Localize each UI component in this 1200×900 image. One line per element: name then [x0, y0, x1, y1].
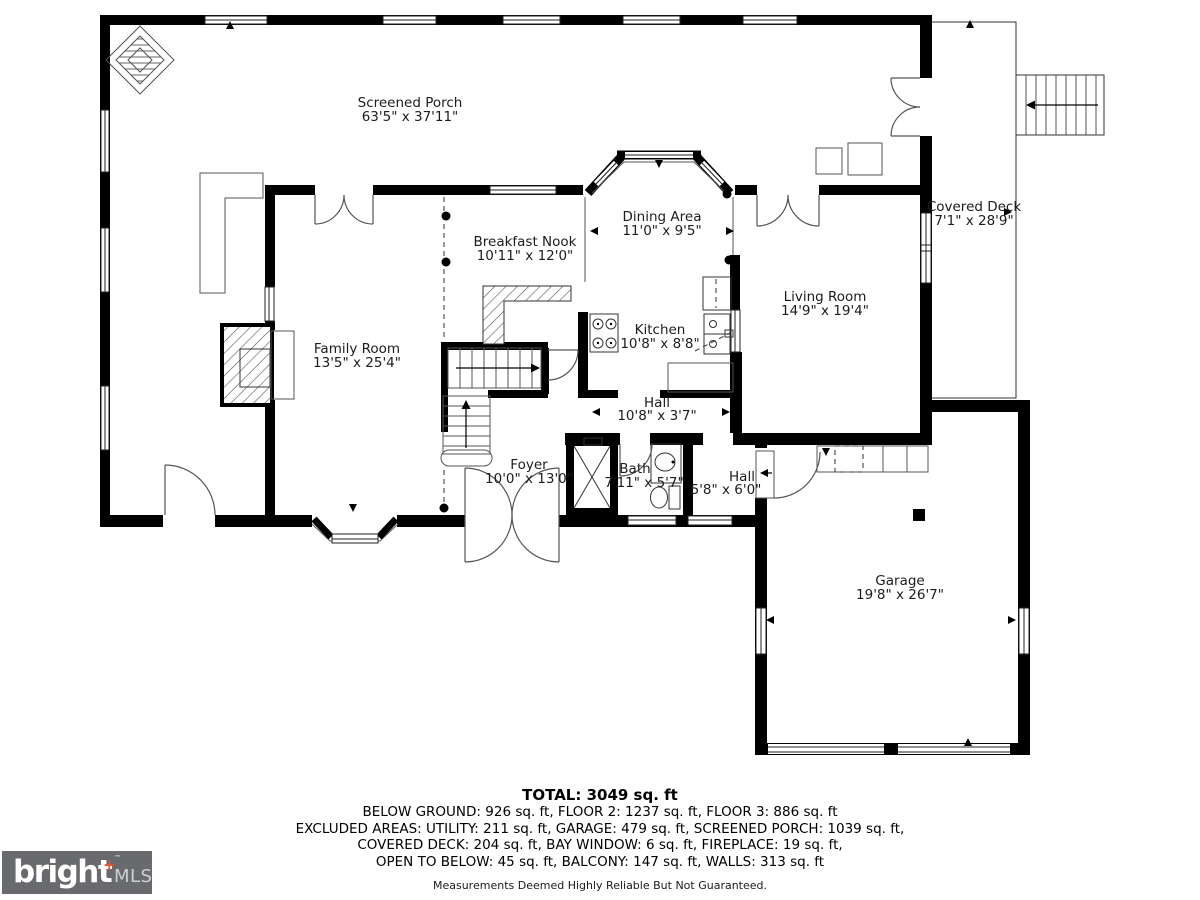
room-dims-family-room: 13'5" x 25'4"	[313, 355, 401, 371]
total-area-text: TOTAL: 3049 sq. ft	[0, 786, 1200, 804]
summary-line-2: EXCLUDED AREAS: UTILITY: 211 sq. ft, GAR…	[0, 821, 1200, 838]
stairs-up-arrow-icon	[531, 364, 540, 373]
plan-annotations	[226, 20, 1016, 746]
disclaimer-text: Measurements Deemed Highly Reliable But …	[0, 879, 1200, 892]
porch-table-2	[848, 143, 882, 175]
summary-line-3: COVERED DECK: 204 sq. ft, BAY WINDOW: 6 …	[0, 837, 1200, 854]
stairs-arrow-icon	[462, 400, 471, 409]
breakfast-counter	[483, 286, 571, 344]
summary-line-1: BELOW GROUND: 926 sq. ft, FLOOR 2: 1237 …	[0, 804, 1200, 821]
porch-table-1	[816, 148, 842, 174]
room-dims-screened-porch: 63'5" x 37'11"	[362, 109, 459, 125]
deck-stairs-arrow-icon	[1026, 101, 1035, 110]
room-dims-bath: 7'11" x 5'7"	[604, 475, 683, 491]
stove-icon	[590, 314, 618, 352]
floor-plan-page: Screened Porch 63'5" x 37'11" Covered De…	[0, 0, 1200, 900]
room-dims-dining-area: 11'0" x 9'5"	[622, 223, 701, 239]
room-dims-foyer: 10'0" x 13'0"	[485, 471, 573, 487]
room-dims-kitchen: 10'8" x 8'8"	[620, 336, 699, 352]
area-summary: TOTAL: 3049 sq. ft BELOW GROUND: 926 sq.…	[0, 786, 1200, 892]
room-dims-garage: 19'8" x 26'7"	[856, 587, 944, 603]
logo-brand-text: bright	[13, 854, 111, 890]
room-dims-breakfast-nook: 10'11" x 12'0"	[477, 248, 574, 264]
garage-cabinets	[817, 446, 928, 472]
fireplace	[222, 325, 294, 405]
logo-suffix-text: MLS	[114, 866, 152, 887]
logo-trademark-icon: ™	[114, 854, 121, 862]
room-dims-hall-2: 5'8" x 6'0"	[691, 482, 762, 498]
doors	[165, 78, 920, 562]
wall-openings	[163, 78, 1010, 754]
refrigerator-icon	[703, 277, 731, 310]
room-dims-living-room: 14'9" x 19'4"	[781, 303, 869, 319]
porch-counter	[200, 173, 263, 293]
garage-post	[913, 509, 925, 521]
floor-plan-drawing: Screened Porch 63'5" x 37'11" Covered De…	[0, 0, 1200, 780]
interior-stairs	[441, 348, 541, 466]
summary-line-4: OPEN TO BELOW: 45 sq. ft, BALCONY: 147 s…	[0, 854, 1200, 871]
bright-mls-logo: bright + ™ MLS	[2, 851, 152, 894]
spa-icon	[106, 26, 174, 94]
room-dims-covered-deck: 7'1" x 28'9"	[934, 213, 1013, 229]
room-dims-hall: 10'8" x 3'7"	[617, 408, 696, 424]
